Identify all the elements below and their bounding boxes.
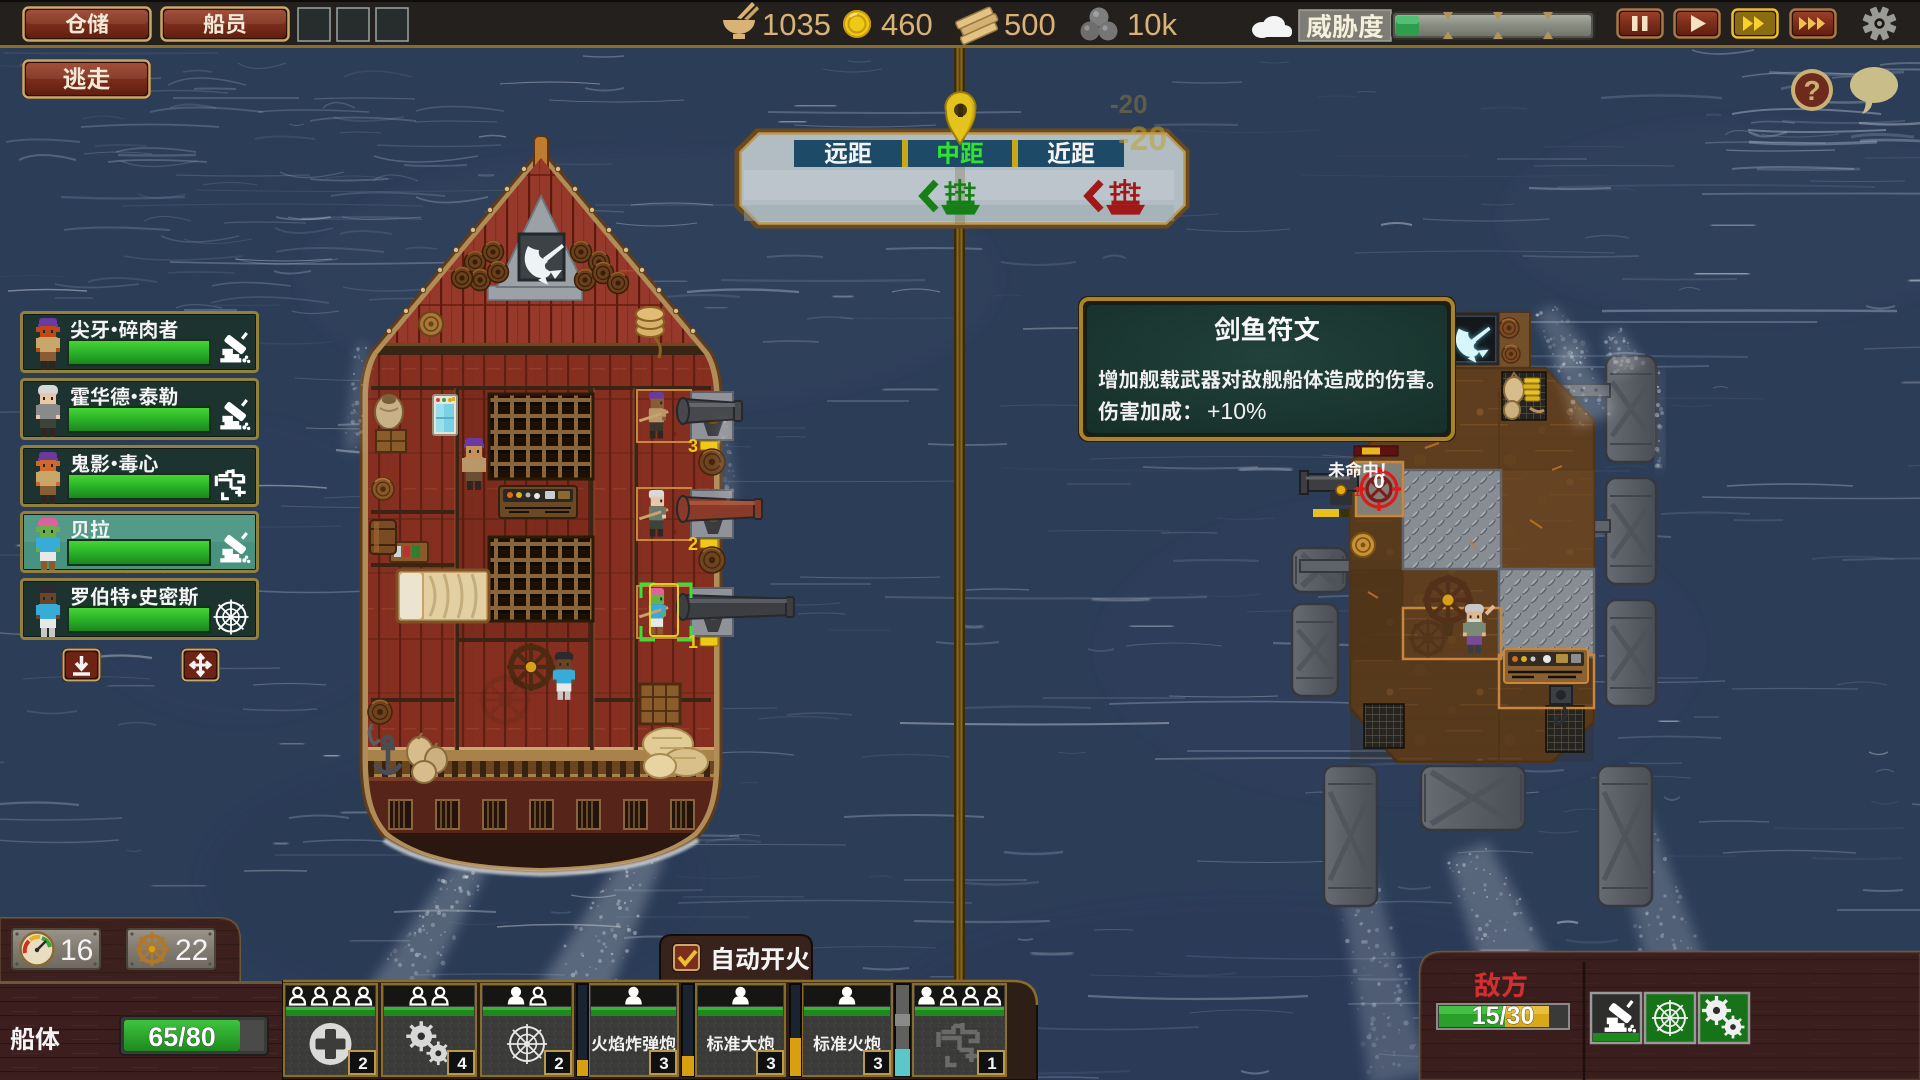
svg-text:1: 1 <box>688 632 698 652</box>
svg-text:-20: -20 <box>1110 89 1148 119</box>
svg-text:3: 3 <box>688 436 698 456</box>
svg-text:2: 2 <box>358 1054 367 1073</box>
svg-text:-20: -20 <box>1118 120 1167 158</box>
svg-text:500: 500 <box>1004 7 1056 42</box>
svg-text:3: 3 <box>873 1054 882 1073</box>
svg-text:1: 1 <box>1353 484 1360 499</box>
svg-text:460: 460 <box>881 7 933 42</box>
svg-text:15/30: 15/30 <box>1472 1002 1535 1030</box>
svg-text:?: ? <box>1803 75 1820 106</box>
svg-text:22: 22 <box>175 934 208 967</box>
svg-text:4: 4 <box>457 1054 467 1073</box>
svg-text:3: 3 <box>659 1054 668 1073</box>
svg-text:1: 1 <box>987 1054 996 1073</box>
svg-text:2: 2 <box>688 534 698 554</box>
svg-text:2: 2 <box>554 1054 563 1073</box>
svg-text:1035: 1035 <box>762 7 831 42</box>
svg-text:+10%: +10% <box>1207 398 1266 424</box>
svg-text:16: 16 <box>60 934 93 967</box>
svg-text:10k: 10k <box>1127 7 1177 42</box>
svg-text:65/80: 65/80 <box>148 1022 216 1052</box>
svg-text:3: 3 <box>766 1054 775 1073</box>
